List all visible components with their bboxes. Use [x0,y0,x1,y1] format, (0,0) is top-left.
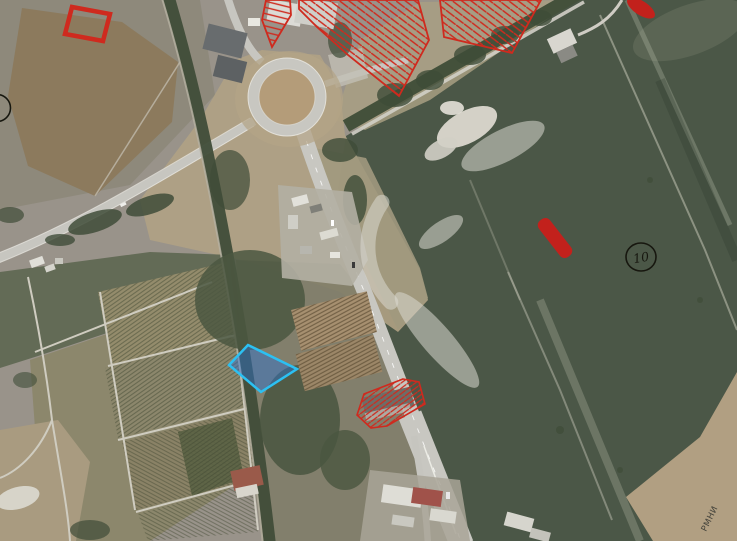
marker-label: 10 [632,249,650,267]
small-building [55,258,63,264]
aerial-map-canvas: 10 РМНИ [0,0,737,541]
tree-dot [556,426,564,434]
tree-cluster [210,150,250,210]
vehicle [446,492,450,499]
tree-cluster [70,520,110,540]
tree-cluster [13,372,37,388]
vehicle [352,262,355,268]
tree-cluster [454,45,486,65]
yard-structure [300,246,312,254]
yard-structure [288,215,298,229]
bare-ground-patch [440,101,464,115]
tree-dot [617,467,623,473]
roundabout [235,51,343,147]
map-viewport[interactable]: 10 РМНИ [0,0,737,541]
tree-cluster [322,138,358,162]
tree-cluster [416,70,444,90]
small-building [248,18,260,26]
tree-dot [647,177,653,183]
yard-structure [330,252,340,258]
tree-cluster [45,234,75,246]
woods [320,430,370,490]
tree-dot [697,297,703,303]
vehicle [331,220,334,226]
